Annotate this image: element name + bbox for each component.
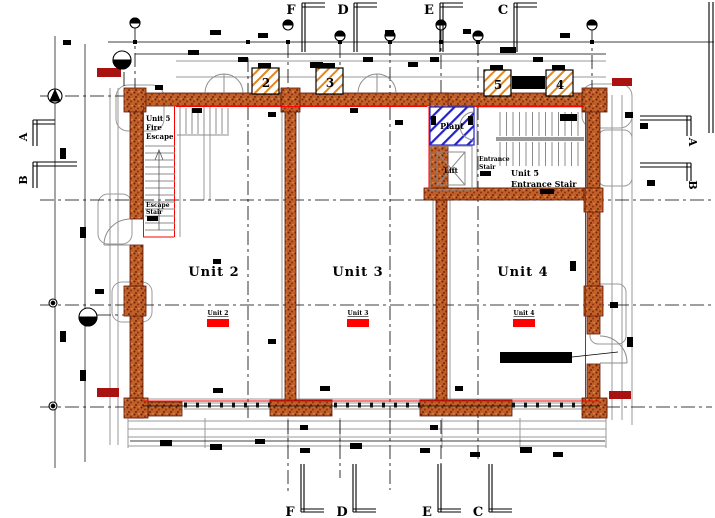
grid-letter-top-e: E	[424, 3, 434, 18]
unit5-entrance-line2: Entrance Stair	[511, 179, 577, 189]
duct-solid-bar	[512, 76, 545, 89]
unit4-label: Unit 4	[497, 265, 548, 280]
wall-top	[128, 93, 607, 106]
pilaster-west-mid	[124, 286, 146, 316]
marker-se	[609, 391, 631, 399]
wall-bottom-b	[270, 400, 332, 416]
plant-room: Plant	[430, 107, 474, 145]
grid-letter-bottom-e: E	[422, 505, 432, 518]
pilaster-top-grid-d	[281, 88, 300, 112]
unit4-solid-bar	[500, 352, 572, 363]
grid-letters-bottom: F D E C	[285, 464, 512, 518]
unit3-label: Unit 3	[332, 265, 383, 280]
pilaster-nw	[124, 88, 146, 112]
section-right-a: A	[686, 137, 699, 147]
marker-ne	[612, 78, 632, 86]
unit4-tag-marker	[513, 319, 535, 327]
unit2-label: Unit 2	[188, 265, 239, 280]
door-right-wall	[600, 336, 627, 363]
wall-left-lower	[130, 245, 143, 418]
section-left-a: A	[17, 132, 30, 142]
pilaster-east-2	[584, 286, 603, 316]
unit3-tag-marker	[347, 319, 369, 327]
grid-letter-bottom-c: C	[473, 505, 483, 518]
unit2-tag: Unit 2	[208, 310, 229, 317]
wall-bottom-c	[420, 400, 512, 416]
pilaster-east-1	[584, 188, 603, 212]
unit4-tag: Unit 4	[514, 310, 535, 317]
escape-stair-line2: Stair	[146, 209, 163, 216]
section-left-b: B	[17, 175, 30, 184]
grid-letter-bottom-f: F	[285, 505, 295, 518]
entrance-stair-line1: Entrance	[479, 156, 510, 163]
marker-sw	[97, 388, 119, 397]
fire-escape-line2: Fire	[146, 123, 162, 132]
shaft-number-2: 2	[262, 76, 270, 90]
shaft-number-4: 4	[556, 78, 564, 92]
wall-unit2-unit3	[285, 100, 296, 402]
unit2-tag-marker	[207, 319, 229, 327]
entrance-stair-line2: Stair	[479, 164, 496, 171]
lift-label: Lift	[444, 166, 459, 175]
grid-letter-top-c: C	[498, 3, 508, 18]
section-right-b: B	[686, 180, 699, 189]
shaft-number-5: 5	[494, 78, 502, 92]
floor-plan-drawing: Plant Lift 2 3 5 4 Unit 2 Unit 3 Unit 4	[0, 0, 715, 518]
unit-tags: Unit 2 Unit 3 Unit 4	[207, 310, 535, 327]
unit5-entrance-line1: Unit 5	[511, 168, 539, 178]
shaft-number-3: 3	[326, 76, 334, 90]
grid-letter-top-f: F	[286, 3, 296, 18]
fire-escape-line3: Escape	[146, 132, 174, 141]
grid-letter-bottom-d: D	[336, 505, 347, 518]
grid-letter-top-d: D	[337, 3, 348, 18]
door-left-escape	[104, 219, 130, 245]
escape-stair-line1: Escape	[146, 202, 170, 209]
unit3-tag: Unit 3	[348, 310, 369, 317]
marker-nw	[97, 68, 121, 77]
grid-letters-top: F D E C	[286, 3, 537, 52]
fire-escape-line1: Unit 5	[146, 114, 171, 123]
plan-canvas: Plant Lift 2 3 5 4 Unit 2 Unit 3 Unit 4	[0, 0, 715, 518]
